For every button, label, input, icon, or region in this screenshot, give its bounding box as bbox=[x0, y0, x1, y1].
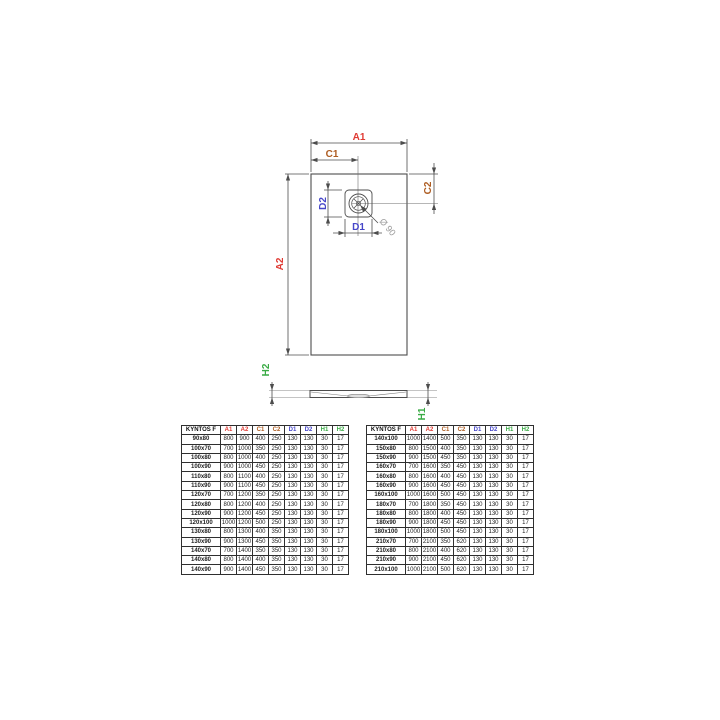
dim-value: 800 bbox=[221, 472, 237, 481]
size-label: 110x90 bbox=[182, 481, 221, 490]
dim-column-header: A1 bbox=[221, 426, 237, 435]
dim-value: 800 bbox=[406, 472, 422, 481]
dim-value: 30 bbox=[502, 528, 518, 537]
dim-value: 130 bbox=[301, 509, 317, 518]
size-label: 100x70 bbox=[182, 444, 221, 453]
dim-value: 1000 bbox=[221, 518, 237, 527]
dim-value: 900 bbox=[221, 481, 237, 490]
dim-value: 700 bbox=[406, 537, 422, 546]
dim-value: 130 bbox=[301, 500, 317, 509]
dim-value: 1600 bbox=[422, 481, 438, 490]
dim-value: 250 bbox=[269, 453, 285, 462]
dim-value: 620 bbox=[454, 546, 470, 555]
dim-value: 130 bbox=[285, 463, 301, 472]
dim-value: 620 bbox=[454, 556, 470, 565]
technical-drawing: A1 C1 A2 C2 bbox=[0, 0, 720, 720]
dim-value: 1800 bbox=[422, 500, 438, 509]
dim-value: 130 bbox=[470, 528, 486, 537]
dim-value: 1000 bbox=[237, 453, 253, 462]
size-label: 180x70 bbox=[367, 500, 406, 509]
dim-value: 30 bbox=[502, 491, 518, 500]
dim-value: 130 bbox=[470, 472, 486, 481]
dim-value: 250 bbox=[269, 500, 285, 509]
dim-value: 30 bbox=[317, 528, 333, 537]
dim-value: 700 bbox=[221, 491, 237, 500]
size-row: 120x8080012004002501301303017 bbox=[182, 500, 349, 509]
dim-value: 130 bbox=[486, 481, 502, 490]
dim-value: 250 bbox=[269, 491, 285, 500]
dim-value: 400 bbox=[253, 500, 269, 509]
dim-value: 17 bbox=[518, 435, 534, 444]
dim-value: 800 bbox=[406, 444, 422, 453]
size-row: 180x7070018003504501301303017 bbox=[367, 500, 534, 509]
dim-value: 17 bbox=[333, 500, 349, 509]
dim-value: 900 bbox=[406, 518, 422, 527]
size-row: 210x100100021005006201301303017 bbox=[367, 565, 534, 574]
size-label: 160x90 bbox=[367, 481, 406, 490]
dim-value: 400 bbox=[438, 472, 454, 481]
dim-column-header: A1 bbox=[406, 426, 422, 435]
size-row: 160x7070016003504501301303017 bbox=[367, 463, 534, 472]
dim-value: 400 bbox=[253, 528, 269, 537]
dim-column-header: C2 bbox=[269, 426, 285, 435]
dim-value: 30 bbox=[502, 435, 518, 444]
dim-value: 700 bbox=[406, 500, 422, 509]
dim-value: 130 bbox=[301, 435, 317, 444]
size-label: 120x80 bbox=[182, 500, 221, 509]
dim-value: 130 bbox=[285, 565, 301, 574]
dim-value: 350 bbox=[253, 546, 269, 555]
size-label: 210x100 bbox=[367, 565, 406, 574]
dim-value: 17 bbox=[518, 453, 534, 462]
dim-value: 17 bbox=[333, 463, 349, 472]
dim-column-header: D2 bbox=[301, 426, 317, 435]
dim-value: 1000 bbox=[406, 565, 422, 574]
dim-value: 1800 bbox=[422, 528, 438, 537]
dim-value: 17 bbox=[518, 565, 534, 574]
dim-value: 1400 bbox=[237, 546, 253, 555]
dim-value: 30 bbox=[502, 518, 518, 527]
dim-value: 350 bbox=[438, 537, 454, 546]
dim-value: 130 bbox=[285, 491, 301, 500]
dim-value: 900 bbox=[221, 565, 237, 574]
dim-h1: H1 bbox=[417, 382, 430, 420]
dim-label-c1: C1 bbox=[326, 149, 339, 160]
dim-column-header: D1 bbox=[285, 426, 301, 435]
dim-column-header: H1 bbox=[502, 426, 518, 435]
dim-column-header: H2 bbox=[518, 426, 534, 435]
dim-value: 17 bbox=[518, 472, 534, 481]
dim-value: 350 bbox=[269, 537, 285, 546]
dim-value: 800 bbox=[406, 509, 422, 518]
dim-value: 400 bbox=[253, 556, 269, 565]
dim-value: 17 bbox=[333, 491, 349, 500]
dim-value: 350 bbox=[454, 444, 470, 453]
dim-value: 130 bbox=[470, 509, 486, 518]
dim-value: 800 bbox=[221, 500, 237, 509]
dim-value: 130 bbox=[301, 472, 317, 481]
dim-value: 1200 bbox=[237, 491, 253, 500]
size-label: 90x80 bbox=[182, 435, 221, 444]
dim-value: 130 bbox=[301, 481, 317, 490]
dim-value: 450 bbox=[454, 472, 470, 481]
dim-value: 130 bbox=[301, 565, 317, 574]
size-row: 180x8080018004004501301303017 bbox=[367, 509, 534, 518]
dim-value: 130 bbox=[470, 565, 486, 574]
dim-value: 30 bbox=[502, 453, 518, 462]
dim-value: 350 bbox=[269, 546, 285, 555]
dim-value: 450 bbox=[454, 528, 470, 537]
dim-value: 17 bbox=[518, 537, 534, 546]
dim-h2: H2 bbox=[261, 363, 274, 406]
dim-value: 17 bbox=[333, 546, 349, 555]
dim-value: 17 bbox=[518, 528, 534, 537]
dim-value: 450 bbox=[253, 565, 269, 574]
dim-value: 450 bbox=[454, 518, 470, 527]
dim-value: 17 bbox=[518, 556, 534, 565]
dim-value: 17 bbox=[333, 518, 349, 527]
size-label: 150x80 bbox=[367, 444, 406, 453]
dim-value: 1000 bbox=[406, 491, 422, 500]
dim-value: 30 bbox=[502, 565, 518, 574]
dim-value: 450 bbox=[438, 453, 454, 462]
dim-value: 350 bbox=[269, 556, 285, 565]
dim-value: 250 bbox=[269, 472, 285, 481]
dim-value: 620 bbox=[454, 537, 470, 546]
dim-value: 17 bbox=[518, 481, 534, 490]
dim-column-header: H1 bbox=[317, 426, 333, 435]
dim-value: 450 bbox=[454, 463, 470, 472]
dim-label-d1: D1 bbox=[352, 222, 365, 233]
dim-value: 1500 bbox=[422, 453, 438, 462]
size-label: 160x70 bbox=[367, 463, 406, 472]
dim-value: 30 bbox=[317, 565, 333, 574]
dim-value: 700 bbox=[221, 444, 237, 453]
dim-c1: C1 bbox=[311, 149, 358, 162]
size-row: 110x9090011004502501301303017 bbox=[182, 481, 349, 490]
dim-value: 900 bbox=[406, 481, 422, 490]
table-header-row: KYNTOS FA1A2C1C2D1D2H1H2 bbox=[182, 426, 349, 435]
dim-value: 30 bbox=[502, 546, 518, 555]
dim-value: 17 bbox=[333, 472, 349, 481]
size-label: 210x90 bbox=[367, 556, 406, 565]
dim-value: 17 bbox=[333, 537, 349, 546]
product-name-header: KYNTOS F bbox=[182, 426, 221, 435]
dim-value: 17 bbox=[333, 509, 349, 518]
dim-value: 1000 bbox=[406, 435, 422, 444]
dim-value: 30 bbox=[317, 463, 333, 472]
size-label: 130x80 bbox=[182, 528, 221, 537]
dim-value: 450 bbox=[454, 500, 470, 509]
dim-value: 130 bbox=[486, 453, 502, 462]
dim-label-h1: H1 bbox=[417, 407, 428, 420]
dim-a2: A2 bbox=[275, 174, 309, 355]
dim-value: 130 bbox=[486, 435, 502, 444]
dim-value: 130 bbox=[486, 444, 502, 453]
dim-value: 1000 bbox=[237, 463, 253, 472]
dim-value: 30 bbox=[317, 509, 333, 518]
dim-value: 130 bbox=[486, 546, 502, 555]
dim-value: 30 bbox=[317, 518, 333, 527]
dim-value: 800 bbox=[221, 556, 237, 565]
dim-value: 130 bbox=[285, 528, 301, 537]
dim-value: 350 bbox=[438, 463, 454, 472]
dim-value: 30 bbox=[502, 481, 518, 490]
dim-column-header: C1 bbox=[438, 426, 454, 435]
dim-value: 30 bbox=[317, 491, 333, 500]
dim-value: 130 bbox=[285, 546, 301, 555]
dim-column-header: C2 bbox=[454, 426, 470, 435]
dim-value: 250 bbox=[269, 444, 285, 453]
size-label: 100x90 bbox=[182, 463, 221, 472]
dim-value: 17 bbox=[333, 565, 349, 574]
dim-value: 30 bbox=[502, 444, 518, 453]
size-label: 210x80 bbox=[367, 546, 406, 555]
dim-label-a2: A2 bbox=[275, 257, 286, 270]
dim-value: 130 bbox=[301, 453, 317, 462]
dim-value: 130 bbox=[470, 453, 486, 462]
dim-value: 17 bbox=[518, 500, 534, 509]
dim-value: 130 bbox=[470, 444, 486, 453]
dim-value: 500 bbox=[438, 491, 454, 500]
dim-value: 1400 bbox=[422, 435, 438, 444]
dim-value: 1600 bbox=[422, 472, 438, 481]
dim-value: 700 bbox=[221, 546, 237, 555]
dim-value: 17 bbox=[518, 546, 534, 555]
dim-value: 130 bbox=[285, 481, 301, 490]
dim-label-d2: D2 bbox=[318, 197, 329, 210]
dim-value: 130 bbox=[486, 518, 502, 527]
size-row: 160x9090016004504501301303017 bbox=[367, 481, 534, 490]
dim-value: 250 bbox=[269, 518, 285, 527]
dim-value: 1800 bbox=[422, 518, 438, 527]
size-row: 130x8080013004003501301303017 bbox=[182, 528, 349, 537]
dim-value: 130 bbox=[470, 435, 486, 444]
dim-label-c2: C2 bbox=[423, 181, 434, 194]
dim-value: 500 bbox=[253, 518, 269, 527]
size-row: 110x8080011004002501301303017 bbox=[182, 472, 349, 481]
size-row: 160x8080016004004501301303017 bbox=[367, 472, 534, 481]
dim-value: 130 bbox=[301, 518, 317, 527]
dim-value: 30 bbox=[502, 472, 518, 481]
dim-value: 1200 bbox=[237, 500, 253, 509]
dim-value: 350 bbox=[269, 565, 285, 574]
dim-value: 17 bbox=[518, 518, 534, 527]
dim-value: 130 bbox=[301, 491, 317, 500]
dim-value: 130 bbox=[486, 565, 502, 574]
dim-value: 800 bbox=[406, 546, 422, 555]
size-row: 160x100100016005004501301303017 bbox=[367, 491, 534, 500]
dim-value: 1200 bbox=[237, 518, 253, 527]
size-row: 180x9090018004504501301303017 bbox=[367, 518, 534, 527]
dim-value: 130 bbox=[486, 537, 502, 546]
dim-value: 250 bbox=[269, 481, 285, 490]
dim-value: 2100 bbox=[422, 556, 438, 565]
dim-column-header: A2 bbox=[237, 426, 253, 435]
size-row: 100x8080010004002501301303017 bbox=[182, 453, 349, 462]
dim-value: 450 bbox=[253, 463, 269, 472]
dim-value: 1000 bbox=[406, 528, 422, 537]
dim-value: 130 bbox=[301, 546, 317, 555]
size-row: 210x9090021004506201301303017 bbox=[367, 556, 534, 565]
size-row: 140x7070014003503501301303017 bbox=[182, 546, 349, 555]
dim-value: 30 bbox=[317, 435, 333, 444]
dim-value: 130 bbox=[486, 491, 502, 500]
size-row: 140x9090014004503501301303017 bbox=[182, 565, 349, 574]
dim-value: 1400 bbox=[237, 565, 253, 574]
size-row: 210x7070021003506201301303017 bbox=[367, 537, 534, 546]
dim-value: 17 bbox=[518, 463, 534, 472]
dim-value: 130 bbox=[470, 491, 486, 500]
dim-value: 1000 bbox=[237, 444, 253, 453]
dim-value: 17 bbox=[333, 444, 349, 453]
dim-value: 130 bbox=[486, 463, 502, 472]
table-header-row: KYNTOS FA1A2C1C2D1D2H1H2 bbox=[367, 426, 534, 435]
dim-value: 17 bbox=[333, 453, 349, 462]
dim-value: 450 bbox=[454, 491, 470, 500]
dim-value: 17 bbox=[333, 556, 349, 565]
size-label: 180x80 bbox=[367, 509, 406, 518]
dim-value: 130 bbox=[486, 509, 502, 518]
dim-value: 2100 bbox=[422, 546, 438, 555]
dim-value: 130 bbox=[301, 463, 317, 472]
dim-value: 700 bbox=[406, 463, 422, 472]
dim-value: 400 bbox=[438, 509, 454, 518]
size-row: 90x808009004002501301303017 bbox=[182, 435, 349, 444]
dim-label-a1: A1 bbox=[353, 132, 366, 143]
dim-value: 900 bbox=[221, 537, 237, 546]
size-row: 150x8080015004003501301303017 bbox=[367, 444, 534, 453]
dim-value: 900 bbox=[237, 435, 253, 444]
size-row: 120x100100012005002501301303017 bbox=[182, 518, 349, 527]
dim-value: 17 bbox=[333, 435, 349, 444]
dim-value: 350 bbox=[454, 453, 470, 462]
dim-value: 30 bbox=[317, 546, 333, 555]
size-row: 210x8080021004006201301303017 bbox=[367, 546, 534, 555]
dim-value: 1600 bbox=[422, 463, 438, 472]
dim-value: 30 bbox=[317, 453, 333, 462]
dim-value: 17 bbox=[518, 491, 534, 500]
dim-value: 1300 bbox=[237, 528, 253, 537]
dim-value: 800 bbox=[221, 528, 237, 537]
dim-value: 130 bbox=[301, 537, 317, 546]
dim-value: 1800 bbox=[422, 509, 438, 518]
dim-value: 130 bbox=[470, 556, 486, 565]
dim-value: 130 bbox=[486, 500, 502, 509]
dim-value: 130 bbox=[285, 537, 301, 546]
dim-value: 30 bbox=[317, 481, 333, 490]
dim-value: 130 bbox=[470, 537, 486, 546]
dim-value: 130 bbox=[285, 556, 301, 565]
dim-value: 30 bbox=[502, 556, 518, 565]
dim-value: 130 bbox=[285, 500, 301, 509]
size-row: 180x100100018005004501301303017 bbox=[367, 528, 534, 537]
dim-value: 130 bbox=[285, 453, 301, 462]
dim-value: 130 bbox=[470, 518, 486, 527]
dim-value: 130 bbox=[285, 518, 301, 527]
dim-value: 30 bbox=[317, 472, 333, 481]
dim-value: 130 bbox=[301, 528, 317, 537]
size-row: 120x9090012004502501301303017 bbox=[182, 509, 349, 518]
size-label: 120x100 bbox=[182, 518, 221, 527]
dim-value: 1500 bbox=[422, 444, 438, 453]
size-label: 180x100 bbox=[367, 528, 406, 537]
dim-value: 30 bbox=[502, 537, 518, 546]
dim-value: 130 bbox=[486, 528, 502, 537]
dim-c2: C2 bbox=[409, 163, 438, 214]
size-label: 140x100 bbox=[367, 435, 406, 444]
size-label: 140x90 bbox=[182, 565, 221, 574]
dim-value: 400 bbox=[253, 472, 269, 481]
size-label: 210x70 bbox=[367, 537, 406, 546]
size-label: 140x70 bbox=[182, 546, 221, 555]
shower-tray-dimension-sheet: A1 C1 A2 C2 bbox=[0, 0, 720, 720]
dim-value: 1300 bbox=[237, 537, 253, 546]
dim-value: 30 bbox=[317, 537, 333, 546]
dim-value: 130 bbox=[301, 556, 317, 565]
dim-value: 1100 bbox=[237, 472, 253, 481]
dim-value: 450 bbox=[454, 509, 470, 518]
dim-value: 350 bbox=[253, 444, 269, 453]
size-row: 100x9090010004502501301303017 bbox=[182, 463, 349, 472]
dim-value: 1400 bbox=[237, 556, 253, 565]
dim-value: 400 bbox=[253, 453, 269, 462]
size-row: 150x9090015004503501301303017 bbox=[367, 453, 534, 462]
size-label: 120x90 bbox=[182, 509, 221, 518]
dim-value: 130 bbox=[301, 444, 317, 453]
dim-value: 450 bbox=[253, 481, 269, 490]
size-row: 130x9090013004503501301303017 bbox=[182, 537, 349, 546]
dim-value: 350 bbox=[438, 500, 454, 509]
dim-value: 1200 bbox=[237, 509, 253, 518]
dim-value: 130 bbox=[470, 463, 486, 472]
size-row: 100x7070010003502501301303017 bbox=[182, 444, 349, 453]
product-name-header: KYNTOS F bbox=[367, 426, 406, 435]
dim-value: 30 bbox=[317, 556, 333, 565]
dim-value: 900 bbox=[406, 453, 422, 462]
dim-value: 1100 bbox=[237, 481, 253, 490]
dim-value: 30 bbox=[317, 444, 333, 453]
dim-value: 250 bbox=[269, 435, 285, 444]
dim-value: 1600 bbox=[422, 491, 438, 500]
dim-value: 130 bbox=[470, 546, 486, 555]
dim-value: 800 bbox=[221, 435, 237, 444]
dim-value: 130 bbox=[285, 509, 301, 518]
dim-value: 2100 bbox=[422, 537, 438, 546]
dim-value: 500 bbox=[438, 565, 454, 574]
size-row: 120x7070012003502501301303017 bbox=[182, 491, 349, 500]
dim-value: 30 bbox=[502, 463, 518, 472]
dim-value: 400 bbox=[438, 444, 454, 453]
dim-value: 450 bbox=[438, 556, 454, 565]
dim-value: 130 bbox=[486, 472, 502, 481]
dim-value: 500 bbox=[438, 528, 454, 537]
size-label: 140x80 bbox=[182, 556, 221, 565]
dim-value: 17 bbox=[518, 444, 534, 453]
size-label: 100x80 bbox=[182, 453, 221, 462]
dimensions-table-right: KYNTOS FA1A2C1C2D1D2H1H2 140x10010001400… bbox=[366, 425, 534, 575]
dim-value: 130 bbox=[486, 556, 502, 565]
size-label: 130x90 bbox=[182, 537, 221, 546]
size-label: 180x90 bbox=[367, 518, 406, 527]
dim-value: 250 bbox=[269, 463, 285, 472]
size-label: 150x90 bbox=[367, 453, 406, 462]
size-label: 160x80 bbox=[367, 472, 406, 481]
dim-value: 450 bbox=[454, 481, 470, 490]
size-row: 140x8080014004003501301303017 bbox=[182, 556, 349, 565]
size-label: 160x100 bbox=[367, 491, 406, 500]
dim-value: 900 bbox=[221, 509, 237, 518]
